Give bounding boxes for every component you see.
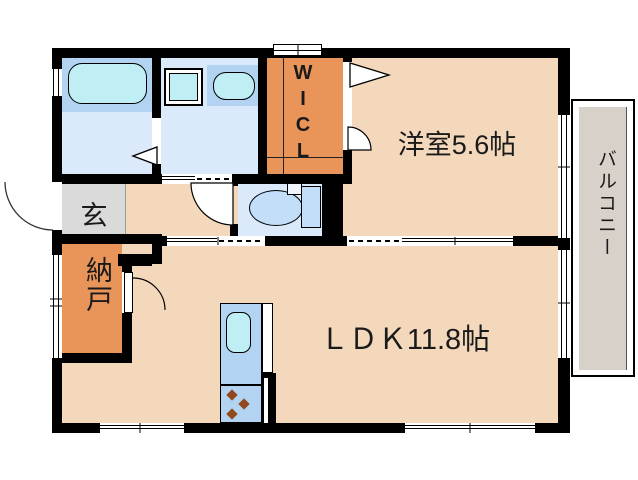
balcony-deck: バルコニー (579, 107, 627, 370)
window (100, 423, 184, 433)
wall (258, 57, 267, 174)
wall (558, 358, 570, 433)
toilet-bowl (249, 190, 303, 226)
wall (122, 254, 132, 272)
wall (230, 224, 238, 236)
vanity-sink (213, 72, 255, 100)
bathroom-floor (62, 112, 152, 174)
wall (513, 236, 558, 246)
toilet-flush-box (287, 183, 302, 195)
wall (343, 150, 352, 184)
wall (52, 353, 132, 363)
wall (265, 236, 347, 246)
wall (52, 174, 162, 184)
wicl-letter: L (297, 138, 309, 164)
sliding-door-hall-ldk (167, 236, 265, 246)
ldk-label: ＬＤＫ11.8帖 (270, 316, 540, 358)
wall (52, 234, 162, 244)
entrance-label: 玄 (62, 194, 126, 233)
toilet-tank (301, 186, 321, 228)
sliding-door-washroom (162, 174, 232, 184)
kitchen-counter-divider (221, 384, 261, 386)
kitchen-sink (226, 312, 251, 353)
balcony-sliding-door-ldk (558, 250, 570, 358)
wicl-letter: I (300, 86, 306, 112)
window (405, 423, 535, 433)
wall (122, 313, 132, 353)
kitchen-stub-gap (264, 378, 268, 423)
wicl-label: W I C L (290, 60, 316, 164)
window (273, 44, 322, 56)
storage-door-leaf (124, 272, 133, 313)
wall (558, 48, 570, 115)
balcony-label: バルコニー (592, 149, 619, 259)
wall (152, 57, 161, 120)
door-gap-wicl (343, 62, 352, 150)
sliding-door-bedroom-ldk (347, 236, 513, 246)
washing-machine-drum (169, 73, 198, 101)
bathtub (68, 63, 147, 104)
wicl-letter: C (296, 112, 310, 138)
storage-label: 納戸 (78, 256, 117, 314)
floor-plan: バルコニー 洋室5.6帖 ＬＤＫ11.8帖 玄 納戸 W I C L (0, 0, 638, 480)
western-room-label: 洋室5.6帖 (352, 123, 562, 162)
balcony: バルコニー (571, 99, 635, 377)
wall (322, 184, 343, 236)
wall (343, 48, 352, 62)
door-gap-bathroom (152, 118, 161, 164)
entrance-door-opening (50, 182, 62, 230)
window (50, 255, 62, 358)
window (50, 69, 62, 96)
entrance-door-arc (5, 182, 53, 230)
wall (558, 238, 570, 250)
wicl-letter: W (294, 60, 313, 86)
